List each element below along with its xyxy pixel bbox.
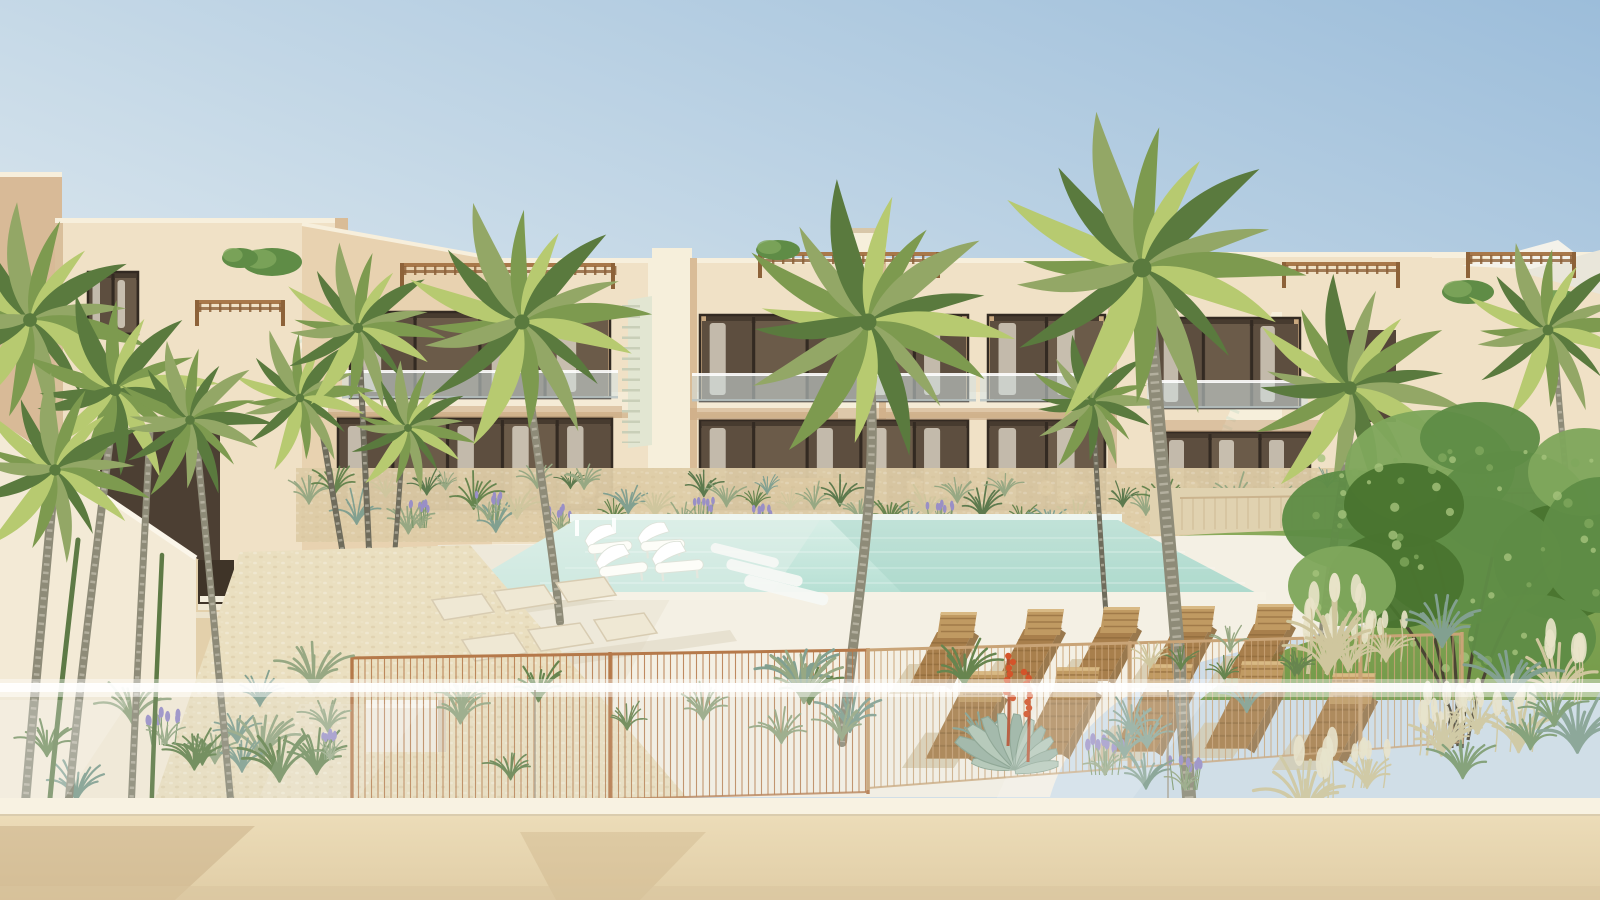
front-parapet-wall [0, 798, 1600, 900]
rooftop-shrub [222, 248, 258, 268]
architectural-rendering [0, 0, 1600, 900]
tree-canopy [1288, 546, 1396, 626]
glass-top-edge [0, 683, 1600, 692]
tree-canopy [1344, 463, 1464, 547]
wall-coping [0, 798, 1600, 816]
rooftop-shrub [756, 240, 800, 260]
rooftop-shrub [1442, 280, 1494, 304]
tree-canopy [1420, 402, 1540, 474]
render-canvas [0, 0, 1600, 900]
